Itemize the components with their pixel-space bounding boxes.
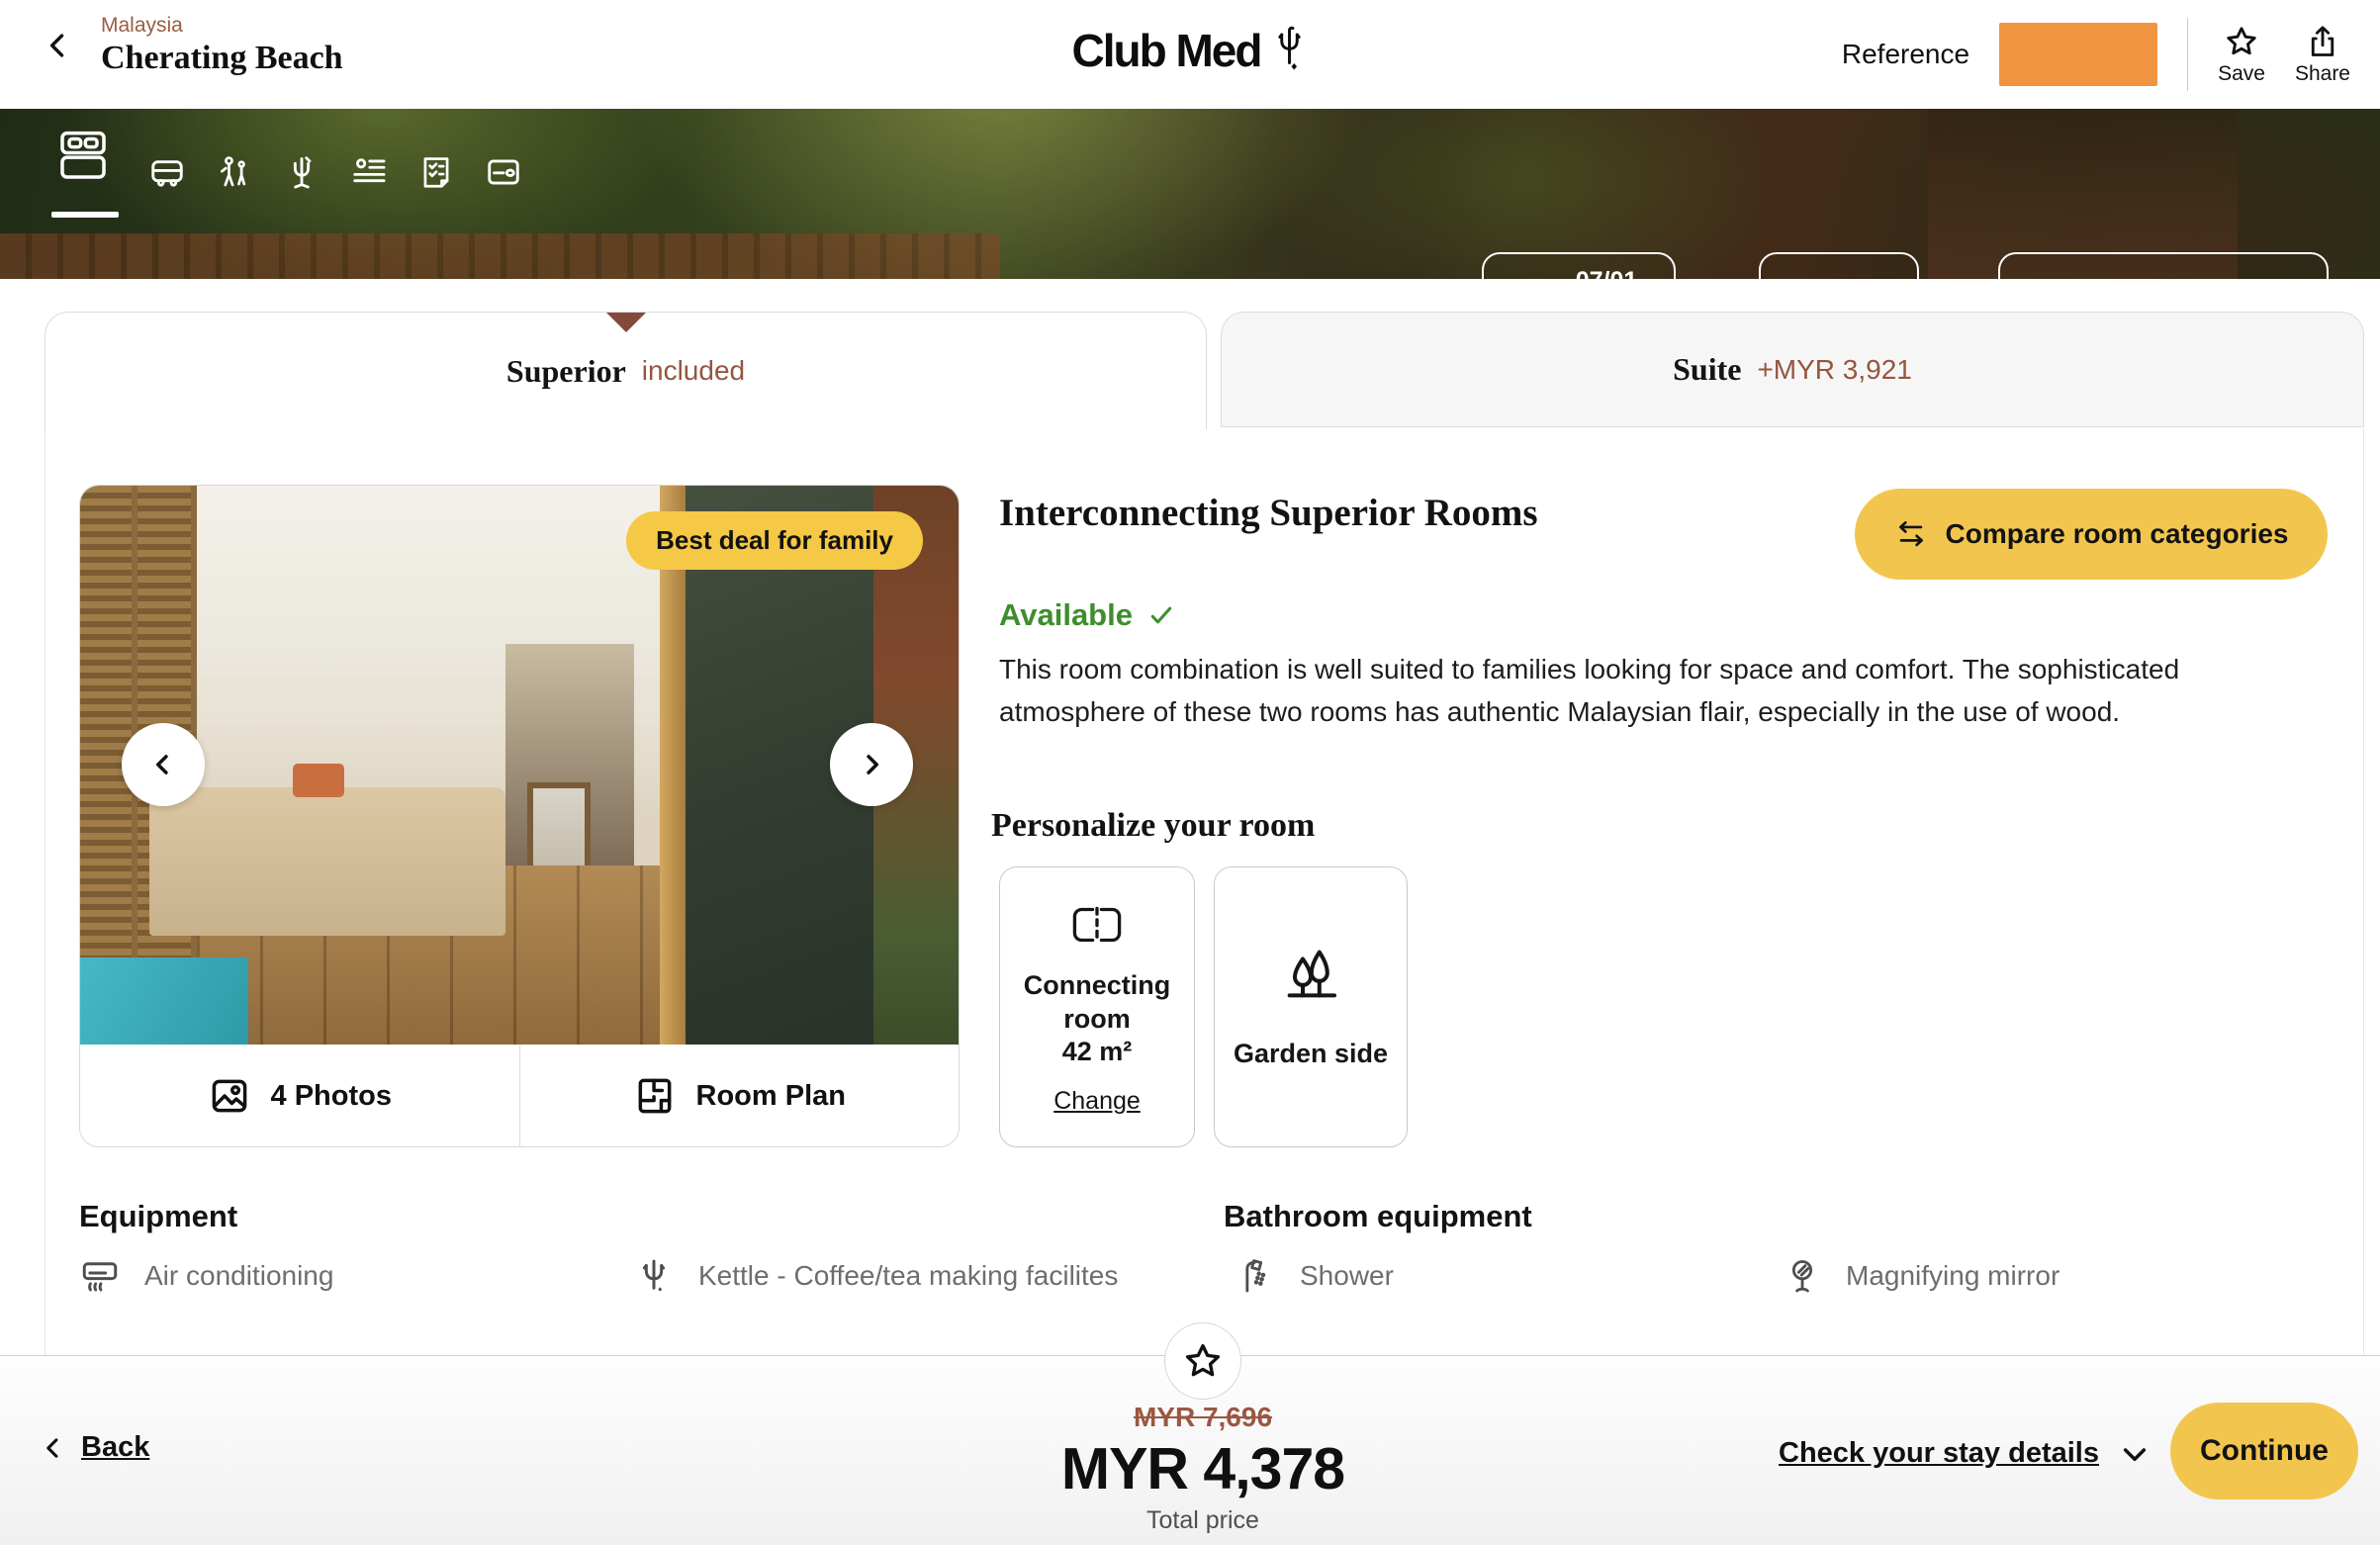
total-price: MYR 4,378 bbox=[1061, 1435, 1344, 1502]
header-divider bbox=[2187, 18, 2188, 91]
magnifying-mirror-icon bbox=[1783, 1256, 1822, 1296]
availability-label: Available bbox=[999, 597, 1133, 633]
room-photo-card: Best deal for family 4 Photos Room Plan bbox=[79, 485, 960, 1147]
date-start: 07/01 bbox=[1576, 267, 1638, 279]
chevron-down-icon bbox=[2119, 1438, 2151, 1470]
guests-icon bbox=[1803, 276, 1843, 279]
chevron-left-icon bbox=[40, 1434, 67, 1462]
bathroom-label: Shower bbox=[1300, 1260, 1394, 1292]
logo-text: Club Med bbox=[1072, 24, 1261, 77]
destination-header: Malaysia Cherating Beach bbox=[38, 14, 343, 77]
calendar-icon bbox=[1520, 276, 1560, 279]
top-header: Malaysia Cherating Beach Club Med Refere… bbox=[0, 0, 2380, 109]
best-deal-badge: Best deal for family bbox=[626, 511, 923, 570]
tab-superior-label: Superior bbox=[506, 353, 626, 390]
booking-stepper-bar: 1/7 Accommodation 07/01 10/01 4 Without … bbox=[0, 109, 2380, 279]
kettle-trident-icon bbox=[633, 1255, 675, 1297]
room-description: This room combination is well suited to … bbox=[999, 649, 2285, 733]
guests-selector[interactable]: 4 bbox=[1759, 252, 1919, 279]
check-stay-details-link[interactable]: Check your stay details bbox=[1779, 1437, 2151, 1470]
photos-button[interactable]: 4 Photos bbox=[80, 1045, 519, 1147]
tab-suite-price: +MYR 3,921 bbox=[1757, 354, 1911, 386]
bathroom-item: Shower bbox=[1236, 1248, 1394, 1304]
option-connecting-room[interactable]: Connecting room42 m² Change bbox=[999, 866, 1195, 1147]
step-payment-icon[interactable] bbox=[485, 153, 522, 191]
page-title: Cherating Beach bbox=[101, 40, 343, 77]
photo-icon bbox=[208, 1074, 251, 1118]
save-label: Save bbox=[2218, 62, 2265, 86]
step-activities-icon[interactable] bbox=[283, 153, 320, 191]
trident-logo-icon bbox=[1270, 24, 1308, 71]
photo-actions-bar: 4 Photos Room Plan bbox=[80, 1045, 959, 1147]
details-label: Check your stay details bbox=[1779, 1437, 2099, 1470]
breadcrumb[interactable]: Malaysia bbox=[101, 14, 343, 38]
star-icon bbox=[2224, 24, 2259, 59]
chevron-right-icon bbox=[858, 751, 885, 778]
back-button[interactable]: Back bbox=[40, 1431, 149, 1464]
save-button[interactable]: Save bbox=[2218, 24, 2265, 86]
change-room-link[interactable]: Change bbox=[1053, 1087, 1141, 1116]
transport-selector[interactable]: Without transport bbox=[1998, 252, 2329, 279]
chevron-left-icon bbox=[149, 751, 177, 778]
chevron-left-icon bbox=[42, 29, 75, 62]
share-label: Share bbox=[2295, 62, 2350, 86]
photo-next-button[interactable] bbox=[830, 723, 913, 806]
tab-superior[interactable]: Superior included bbox=[45, 312, 1207, 429]
step-guest-details-icon[interactable] bbox=[350, 153, 388, 191]
shower-icon bbox=[1236, 1256, 1276, 1296]
header-actions: Reference Save Share bbox=[1842, 0, 2350, 109]
share-button[interactable]: Share bbox=[2295, 24, 2350, 86]
photos-label: 4 Photos bbox=[271, 1080, 392, 1113]
continue-button[interactable]: Continue bbox=[2170, 1403, 2358, 1500]
room-plan-button[interactable]: Room Plan bbox=[519, 1045, 960, 1147]
connecting-room-icon bbox=[1066, 898, 1128, 952]
back-chevron-button[interactable] bbox=[38, 25, 79, 66]
equipment-item: Kettle - Coffee/tea making facilites bbox=[633, 1248, 1118, 1304]
compare-arrows-icon bbox=[1894, 517, 1928, 551]
personalize-title: Personalize your room bbox=[991, 807, 1315, 845]
option-label: Garden side bbox=[1234, 1038, 1388, 1071]
favorite-star-button[interactable] bbox=[1164, 1322, 1241, 1400]
active-step-underline bbox=[51, 212, 119, 218]
share-icon bbox=[2305, 24, 2340, 59]
bathroom-label: Magnifying mirror bbox=[1846, 1260, 2060, 1292]
compare-label: Compare room categories bbox=[1946, 518, 2289, 550]
total-price-caption: Total price bbox=[1061, 1506, 1344, 1535]
equipment-label: Air conditioning bbox=[144, 1260, 333, 1292]
check-icon bbox=[1146, 600, 1176, 630]
dates-selector[interactable]: 07/01 10/01 bbox=[1482, 252, 1676, 279]
option-garden-side[interactable]: Garden side bbox=[1214, 866, 1408, 1147]
active-tab-pointer bbox=[606, 313, 646, 332]
room-photo: Best deal for family bbox=[80, 486, 959, 1045]
availability-status: Available bbox=[999, 597, 1176, 633]
total-price-block: MYR 7,696 MYR 4,378 Total price bbox=[1061, 1402, 1344, 1535]
room-plan-label: Room Plan bbox=[696, 1080, 846, 1113]
step-excursions-icon[interactable] bbox=[216, 153, 253, 191]
bathroom-equipment-title: Bathroom equipment bbox=[1224, 1199, 1532, 1234]
step-summary-icon[interactable] bbox=[417, 153, 455, 191]
equipment-label: Kettle - Coffee/tea making facilites bbox=[698, 1260, 1118, 1292]
garden-trees-icon bbox=[1279, 943, 1342, 1006]
star-icon bbox=[1182, 1340, 1224, 1382]
price-footer-bar: Back MYR 7,696 MYR 4,378 Total price Che… bbox=[0, 1355, 2380, 1545]
clubmed-logo: Club Med bbox=[1072, 24, 1309, 77]
floor-plan-icon bbox=[633, 1074, 677, 1118]
option-label: Connecting room42 m² bbox=[1000, 969, 1194, 1069]
reference-input[interactable] bbox=[1999, 23, 2157, 86]
equipment-item: Air conditioning bbox=[79, 1248, 333, 1304]
tab-suite[interactable]: Suite +MYR 3,921 bbox=[1221, 312, 2364, 427]
reference-label: Reference bbox=[1842, 39, 1969, 70]
room-title: Interconnecting Superior Rooms bbox=[999, 491, 1538, 535]
back-label: Back bbox=[81, 1431, 149, 1464]
step-transport-icon[interactable] bbox=[148, 153, 186, 191]
compare-room-categories-button[interactable]: Compare room categories bbox=[1855, 489, 2328, 580]
equipment-title: Equipment bbox=[79, 1199, 237, 1234]
bathroom-item: Magnifying mirror bbox=[1783, 1248, 2060, 1304]
tab-suite-label: Suite bbox=[1673, 351, 1741, 388]
old-price: MYR 7,696 bbox=[1061, 1402, 1344, 1433]
no-transport-icon bbox=[2035, 277, 2072, 279]
step-accommodation-icon[interactable] bbox=[55, 129, 111, 184]
air-conditioning-icon bbox=[79, 1255, 121, 1297]
tab-superior-status: included bbox=[642, 355, 745, 387]
photo-prev-button[interactable] bbox=[122, 723, 205, 806]
